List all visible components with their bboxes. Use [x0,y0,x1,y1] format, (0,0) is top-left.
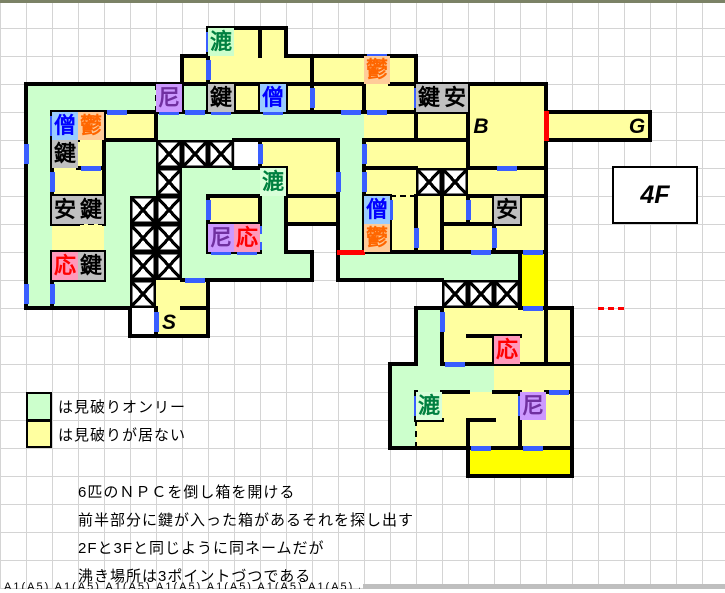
door-blue [445,362,465,367]
no-detect-cell [546,112,572,140]
key-chest-label: 鍵 [78,196,104,224]
detect-only-cell [416,252,442,280]
no-detect-cell [338,84,364,112]
detect-only-cell [416,364,442,392]
detect-only-cell [182,168,208,196]
bright-yellow-cell [468,448,494,476]
npc-an-label: 安 [52,196,78,224]
detect-only-cell [130,84,156,112]
door-blue [367,110,387,115]
detect-only-cell [104,252,130,280]
detect-only-cell [182,224,208,252]
npc-an-label: 安 [494,196,520,224]
detect-only-cell [26,84,52,112]
no-detect-cell [572,112,598,140]
wall [180,306,210,310]
rock-hatch-cell [468,280,494,308]
no-detect-cell [234,84,260,112]
key-chest-label: 鍵 [78,252,104,280]
rock-hatch-cell [130,196,156,224]
no-detect-cell [52,224,78,252]
no-detect-cell [312,56,338,84]
no-detect-cell [520,336,546,364]
no-detect-cell [468,420,494,448]
no-detect-cell [442,112,468,140]
wall [414,278,444,282]
no-detect-cell [520,308,546,336]
wall [466,138,470,170]
no-detect-cell [442,140,468,168]
door-blue [50,284,55,304]
no-detect-cell [546,392,572,420]
wall [388,418,392,450]
key-chest-label: 鍵 [52,140,78,168]
detect-only-cell [104,224,130,252]
bright-yellow-cell [546,448,572,476]
no-detect-cell [312,140,338,168]
wall [388,362,418,366]
npc-utsu-label: 鬱 [364,224,390,252]
detect-only-cell [26,224,52,252]
detect-only-cell [52,280,78,308]
no-detect-cell [312,168,338,196]
key-chest-label: 鍵 [416,84,442,112]
npc-roku-label: 漉 [208,28,234,56]
no-detect-cell [494,140,520,168]
no-detect-cell [260,140,286,168]
door-blue [523,446,543,451]
no-detect-cell [442,196,468,224]
detect-only-cell [364,252,390,280]
no-detect-cell [208,196,234,224]
detect-only-cell [182,196,208,224]
no-detect-cell [520,84,546,112]
door-blue [440,312,445,332]
detect-only-cell [182,84,208,112]
no-detect-cell [520,196,546,224]
no-detect-cell [468,140,494,168]
door-blue [310,88,315,108]
wall [206,306,210,338]
no-detect-cell [494,112,520,140]
door-blue [523,306,543,311]
detect-only-cell [26,280,52,308]
legend-swatch-green [26,392,52,420]
no-detect-cell [286,140,312,168]
wall [440,390,470,394]
door-blue [258,144,263,164]
no-detect-cell [598,112,624,140]
door-blue [341,110,361,115]
no-detect-cell [546,420,572,448]
no-detect-cell [78,140,104,168]
detect-only-cell [260,252,286,280]
wall [466,418,496,422]
wall [544,362,574,366]
red-dashed-mark [598,307,624,310]
no-detect-cell [546,364,572,392]
wall [258,26,262,58]
door-blue [362,172,367,192]
door-blue [24,284,29,304]
no-detect-cell [520,420,546,448]
detect-only-cell [416,336,442,364]
door-blue [185,110,205,115]
map-notes: 6匹のＮＰＣを倒し箱を開ける 前半部分に鍵が入った箱があるそれを探し出す 2Fと… [78,481,414,593]
no-detect-cell [468,336,494,364]
detect-only-cell [338,112,364,140]
rock-hatch-cell [156,168,182,196]
detect-only-cell [78,280,104,308]
no-detect-cell [390,112,416,140]
secret-door-dashed [415,420,417,448]
legend-swatch-yellow [26,420,52,448]
door-blue [206,60,211,80]
no-detect-cell [286,196,312,224]
rock-hatch-cell [156,224,182,252]
legend-row-yellow: は見破りが居ない [26,420,186,448]
door-blue [471,250,491,255]
no-detect-cell [468,392,494,420]
no-detect-cell [364,168,390,196]
detect-only-cell [182,112,208,140]
door-blue [414,228,419,248]
no-detect-cell [364,140,390,168]
legend-row-green: は見破りオンリー [26,392,186,420]
no-detect-cell [78,168,104,196]
no-detect-cell [182,308,208,336]
wall [518,166,548,170]
no-detect-cell [416,420,442,448]
detect-only-cell [338,196,364,224]
no-detect-cell [260,28,286,56]
rock-hatch-cell [182,140,208,168]
detect-only-cell [208,252,234,280]
door-blue [81,166,101,171]
no-detect-cell [520,112,546,140]
no-detect-cell [286,84,312,112]
detect-only-cell [338,252,364,280]
detect-only-cell [260,196,286,224]
detect-only-cell [338,140,364,168]
door-blue [50,172,55,192]
door-blue [206,200,211,220]
no-detect-cell [494,168,520,196]
no-detect-cell [494,420,520,448]
detect-only-cell [234,168,260,196]
detect-only-cell [234,112,260,140]
door-blue [471,446,491,451]
door-blue [362,144,367,164]
no-detect-cell [520,224,546,252]
no-detect-cell [494,84,520,112]
no-detect-cell [442,336,468,364]
no-detect-cell [234,196,260,224]
npc-ama-label: 尼 [156,84,182,112]
detect-only-cell [468,252,494,280]
detect-only-cell [130,168,156,196]
no-detect-cell [156,280,182,308]
door-blue [107,110,127,115]
wall [128,306,132,338]
detect-only-cell [26,140,52,168]
no-detect-cell [390,84,416,112]
secret-door-dashed [390,195,416,197]
point-b-label: B [468,112,494,140]
note-line-2: 前半部分に鍵が入った箱があるそれを探し出す [78,509,414,537]
npc-ou-label: 応 [234,224,260,252]
key-chest-label: 鍵 [208,84,234,112]
no-detect-cell [338,56,364,84]
legend-label: は見破りオンリー [58,396,186,417]
no-detect-cell [390,196,416,224]
no-detect-cell [468,224,494,252]
npc-an-label: 安 [442,84,468,112]
rock-hatch-cell [130,224,156,252]
rock-hatch-cell [156,196,182,224]
wall [440,222,444,254]
note-line-1: 6匹のＮＰＣを倒し箱を開ける [78,481,414,509]
no-detect-cell [520,168,546,196]
wall [518,194,548,198]
detect-only-cell [390,392,416,420]
detect-only-cell [260,112,286,140]
door-blue [466,200,471,220]
detect-only-cell [442,364,468,392]
no-detect-cell [52,168,78,196]
door-blue [336,172,341,192]
no-detect-cell [416,112,442,140]
npc-ama-label: 尼 [208,224,234,252]
floor-indicator-box: 4F [612,166,698,224]
door-blue [497,166,517,171]
bright-yellow-cell [494,448,520,476]
detect-only-cell [260,224,286,252]
door-blue [523,250,543,255]
detect-only-cell [26,168,52,196]
wall [388,166,418,170]
red-wall [337,250,365,255]
detect-only-cell [52,84,78,112]
goal-label: G [624,112,650,140]
rock-hatch-cell [156,140,182,168]
rock-hatch-cell [208,140,234,168]
wall [466,446,470,478]
rock-hatch-cell [494,280,520,308]
detect-only-cell [104,280,130,308]
npc-ama-label: 尼 [520,392,546,420]
note-line-3: 2Fと3Fと同じように同ネームだが [78,537,414,565]
no-detect-cell [520,364,546,392]
wall [544,334,548,366]
no-detect-cell [468,196,494,224]
no-detect-cell [390,140,416,168]
clipped-next-row-text: A1(A5) A1(A5) A1(A5) A1(A5) A1(A5) A1(A5… [4,581,360,589]
no-detect-cell [546,336,572,364]
npc-sou-label: 僧 [260,84,286,112]
no-detect-cell [286,56,312,84]
no-detect-cell [546,308,572,336]
detect-only-cell [442,252,468,280]
detect-only-cell [338,168,364,196]
no-detect-cell [494,224,520,252]
rock-hatch-cell [442,280,468,308]
detect-only-cell [104,140,130,168]
wall [544,446,574,450]
detect-only-cell [130,140,156,168]
detect-only-cell [468,364,494,392]
detect-only-cell [494,252,520,280]
no-detect-cell [286,168,312,196]
no-detect-cell [260,56,286,84]
detect-only-cell [208,112,234,140]
no-detect-cell [208,56,234,84]
detect-only-cell [104,84,130,112]
no-detect-cell [182,280,208,308]
no-detect-cell [234,56,260,84]
floor-label: 4F [640,181,669,210]
detect-only-cell [286,112,312,140]
no-detect-cell [364,84,390,112]
npc-sou-label: 僧 [364,196,390,224]
white-cell [130,308,156,336]
detect-only-cell [182,252,208,280]
npc-roku-label: 漉 [416,392,442,420]
no-detect-cell [416,140,442,168]
detect-only-cell [104,196,130,224]
no-detect-cell [182,56,208,84]
detect-only-cell [78,84,104,112]
no-detect-cell [494,364,520,392]
detect-only-cell [390,252,416,280]
start-label: S [156,308,182,336]
rock-hatch-cell [416,168,442,196]
no-detect-cell [442,308,468,336]
map-legend: は見破りオンリー は見破りが居ない [26,392,186,448]
door-blue [24,144,29,164]
no-detect-cell [416,224,442,252]
detect-only-cell [26,112,52,140]
no-detect-cell [390,224,416,252]
no-detect-cell [468,168,494,196]
no-detect-cell [78,224,104,252]
no-detect-cell [130,112,156,140]
npc-ou-label: 応 [52,252,78,280]
rock-hatch-cell [442,168,468,196]
bright-yellow-cell [520,448,546,476]
detect-only-cell [338,224,364,252]
no-detect-cell [442,392,468,420]
no-detect-cell [364,112,390,140]
no-detect-cell [520,140,546,168]
no-detect-cell [312,84,338,112]
door-blue [492,228,497,248]
no-detect-cell [234,28,260,56]
rock-hatch-cell [130,252,156,280]
detect-only-cell [390,364,416,392]
detect-only-cell [390,420,416,448]
rock-hatch-cell [156,252,182,280]
wall [336,194,340,226]
detect-only-cell [312,112,338,140]
bottom-edge-strip [363,584,725,589]
rock-hatch-cell [130,280,156,308]
wall [310,250,314,282]
no-detect-cell [468,308,494,336]
no-detect-cell [104,112,130,140]
npc-utsu-label: 鬱 [364,56,390,84]
no-detect-cell [416,196,442,224]
no-detect-cell [494,308,520,336]
detect-only-cell [234,252,260,280]
red-wall [544,111,549,141]
door-blue [185,278,205,283]
detect-only-cell [26,252,52,280]
bright-yellow-cell [520,252,546,280]
bright-yellow-cell [520,280,546,308]
wall [258,194,262,226]
wall [570,446,574,478]
detect-only-cell [156,112,182,140]
npc-utsu-label: 鬱 [78,112,104,140]
no-detect-cell [312,196,338,224]
no-detect-cell [390,168,416,196]
door-blue [549,390,569,395]
detect-only-cell [416,308,442,336]
no-detect-cell [390,56,416,84]
detect-only-cell [208,168,234,196]
detect-only-cell [286,252,312,280]
no-detect-cell [468,84,494,112]
wall [154,110,158,142]
wall [414,110,418,142]
legend-label: は見破りが居ない [58,424,186,445]
npc-sou-label: 僧 [52,112,78,140]
wall [284,194,288,226]
npc-ou-label: 応 [494,336,520,364]
no-detect-cell [442,420,468,448]
npc-roku-label: 漉 [260,168,286,196]
wall [336,250,340,282]
no-detect-cell [442,224,468,252]
no-detect-cell [494,392,520,420]
detect-only-cell [26,196,52,224]
detect-only-cell [104,168,130,196]
